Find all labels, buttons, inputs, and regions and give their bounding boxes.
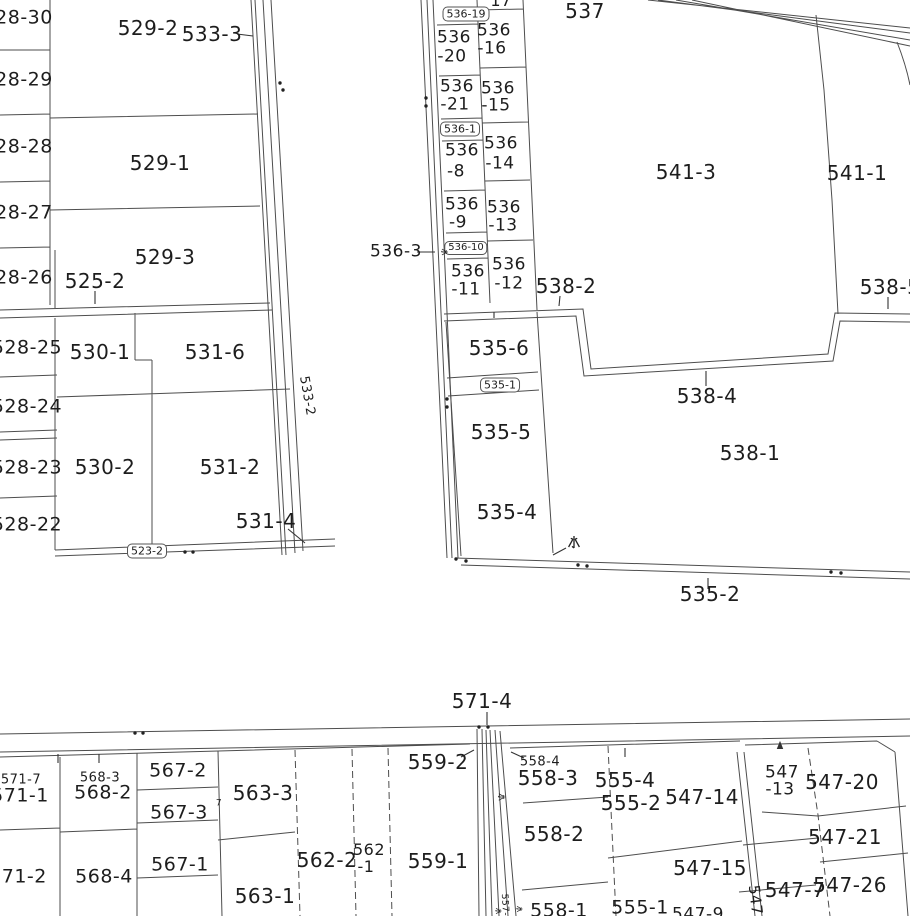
parcel-label-5552: 555-2 bbox=[601, 793, 662, 813]
parcel-label-5477: 547-7 bbox=[765, 880, 826, 900]
parcel-label-7: 7 bbox=[216, 800, 222, 809]
parcel-label-5673: 567-3 bbox=[150, 804, 208, 823]
parcel-label-2826: 28-26 bbox=[0, 269, 53, 288]
parcel-label-5411: 541-1 bbox=[827, 163, 888, 183]
parcel-label-20: -20 bbox=[437, 49, 466, 66]
parcel-label-5292: 529-2 bbox=[118, 18, 179, 38]
parcel-label-8: -8 bbox=[447, 164, 465, 181]
parcel-label-5382: 538-2 bbox=[536, 276, 597, 296]
parcel-label-5302: 530-2 bbox=[75, 457, 136, 477]
parcel-label-13: -13 bbox=[488, 218, 517, 235]
parcel-label-536: 536 bbox=[477, 23, 511, 40]
parcel-label-5413: 541-3 bbox=[656, 162, 717, 182]
parcel-label-5672: 567-2 bbox=[149, 762, 207, 781]
parcel-label-5333: 533-3 bbox=[182, 24, 243, 44]
parcel-label-5384: 538-4 bbox=[677, 386, 738, 406]
water-mark-icon bbox=[513, 905, 523, 913]
parcel-label-21: -21 bbox=[440, 97, 469, 114]
parcel-label-5351: 535-1 bbox=[480, 378, 520, 393]
parcel-label-2828: 28-28 bbox=[0, 138, 53, 157]
parcel-label-15: -15 bbox=[481, 98, 510, 115]
parcel-label-5316: 531-6 bbox=[185, 342, 246, 362]
parcel-label-2830: 28-30 bbox=[0, 9, 53, 28]
parcel-label-5301: 530-1 bbox=[70, 342, 131, 362]
parcel-label-13: -13 bbox=[765, 782, 794, 799]
parcel-label-5232: 523-2 bbox=[127, 544, 167, 559]
parcel-label-53610: 536-10 bbox=[444, 241, 487, 255]
parcel-label-2829: 28-29 bbox=[0, 71, 53, 90]
road-557 bbox=[477, 729, 516, 916]
parcel-label-5633: 563-3 bbox=[233, 783, 294, 803]
parcel-label-53619: 536-19 bbox=[443, 7, 490, 22]
parcel-label-5314: 531-4 bbox=[236, 511, 297, 531]
road-top-right bbox=[648, 0, 910, 46]
parcel-label-5554: 555-4 bbox=[595, 770, 656, 790]
parcel-label-536: 536 bbox=[445, 197, 479, 214]
parcel-label-54714: 547-14 bbox=[665, 787, 739, 807]
parcel-label-54720: 547-20 bbox=[805, 772, 879, 792]
parcel-label-5591: 559-1 bbox=[408, 851, 469, 871]
cadastral-map-canvas[interactable]: 28-3028-2928-2828-2728-26528-25528-24528… bbox=[0, 0, 910, 916]
parcel-label-5712: 571-2 bbox=[0, 868, 47, 887]
parcel-label-17: 17 bbox=[490, 0, 511, 9]
parcel-label-5714: 571-4 bbox=[452, 691, 513, 711]
parcel-label-536: 536 bbox=[492, 257, 526, 274]
parcel-label-2827: 28-27 bbox=[0, 204, 53, 223]
parcel-label-536: 536 bbox=[484, 136, 518, 153]
parcel-label-5381: 538-1 bbox=[720, 443, 781, 463]
parcel-label-11: -11 bbox=[451, 282, 480, 299]
parcel-label-5631: 563-1 bbox=[235, 886, 296, 906]
water-mark-icon bbox=[438, 248, 449, 257]
parcel-label-54721: 547-21 bbox=[808, 827, 882, 847]
parcel-label-5583: 558-3 bbox=[518, 768, 579, 788]
parcel-label-52823: 528-23 bbox=[0, 459, 62, 478]
parcel-label-5671: 567-1 bbox=[151, 856, 209, 875]
parcel-boundaries-562-strip bbox=[295, 748, 392, 916]
survey-point-dots bbox=[133, 81, 842, 734]
parcel-label-9: -9 bbox=[449, 215, 467, 232]
parcel-label-562: 562 bbox=[353, 842, 385, 858]
parcel-label-5291: 529-1 bbox=[130, 153, 191, 173]
parcel-label-536: 536 bbox=[487, 200, 521, 217]
parcel-label-5385: 538-5 bbox=[860, 277, 910, 297]
parcel-label-5684: 568-4 bbox=[75, 868, 133, 887]
parcel-label-5363: 536-3 bbox=[370, 244, 422, 261]
parcel-label-16: -16 bbox=[477, 41, 506, 58]
parcel-label-5354: 535-4 bbox=[477, 502, 538, 522]
parcel-label-14: -14 bbox=[485, 156, 514, 173]
parcel-label-5361: 536-1 bbox=[440, 122, 480, 137]
parcel-label-536: 536 bbox=[445, 143, 479, 160]
parcel-label-5551: 555-1 bbox=[611, 899, 669, 916]
parcel-label-5312: 531-2 bbox=[200, 457, 261, 477]
parcel-label-5711: 571-1 bbox=[0, 787, 49, 806]
parcel-label-54715: 547-15 bbox=[673, 858, 747, 878]
parcel-label-12: -12 bbox=[494, 276, 523, 293]
parcel-label-547: 547 bbox=[746, 884, 765, 916]
parcel-label-5682: 568-2 bbox=[74, 784, 132, 803]
parcel-label-5352: 535-2 bbox=[680, 584, 741, 604]
parcel-label-52822: 528-22 bbox=[0, 516, 62, 535]
parcel-label-5479: 547-9 bbox=[672, 907, 724, 916]
parcel-label-537: 537 bbox=[565, 1, 605, 21]
parcel-label-5355: 535-5 bbox=[471, 422, 532, 442]
parcel-label-1: -1 bbox=[358, 859, 375, 875]
parcel-label-536: 536 bbox=[451, 264, 485, 281]
parcel-label-5581: 558-1 bbox=[530, 902, 588, 916]
parcel-label-5592: 559-2 bbox=[408, 752, 469, 772]
parcel-label-5252: 525-2 bbox=[65, 271, 126, 291]
parcel-label-5356: 535-6 bbox=[469, 338, 530, 358]
parcel-label-52824: 528-24 bbox=[0, 398, 62, 417]
water-mark-icon bbox=[494, 792, 506, 802]
parcel-label-536: 536 bbox=[437, 30, 471, 47]
parcel-label-5582: 558-2 bbox=[524, 824, 585, 844]
water-mark-icon bbox=[492, 907, 502, 915]
parcel-label-5622: 562-2 bbox=[297, 850, 358, 870]
parcel-label-5293: 529-3 bbox=[135, 247, 196, 267]
parcel-label-536: 536 bbox=[440, 79, 474, 96]
water-mark-icon bbox=[566, 535, 582, 555]
parcel-label-52825: 528-25 bbox=[0, 339, 62, 358]
road-535-2 bbox=[455, 558, 910, 579]
